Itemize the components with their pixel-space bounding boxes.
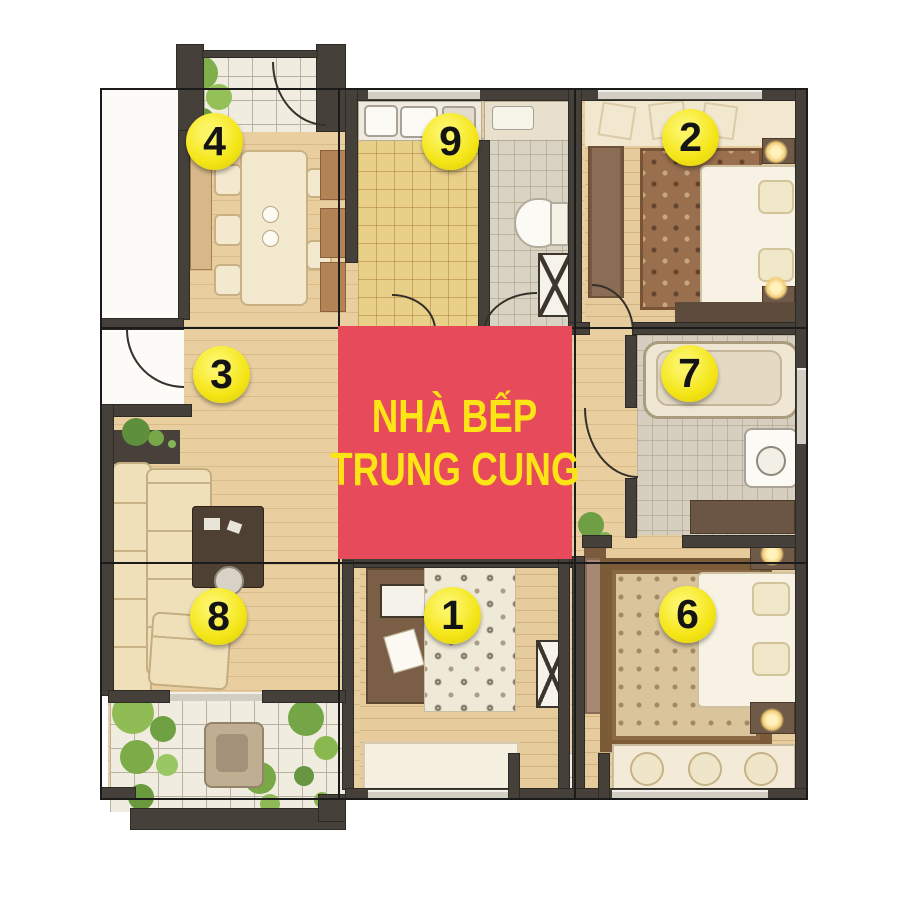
sector-marker-4: 4 (186, 113, 243, 170)
center-kitchen-label: NHÀ BẾP TRUNG CUNG (338, 326, 572, 559)
sector-marker-9: 9 (422, 113, 479, 170)
center-label-line2: TRUNG CUNG (330, 443, 579, 496)
floor-plan: NHÀ BẾP TRUNG CUNG 4 9 2 3 7 8 1 6 (0, 0, 911, 911)
sector-marker-2: 2 (662, 109, 719, 166)
sector-marker-7: 7 (661, 345, 718, 402)
sector-marker-6: 6 (659, 586, 716, 643)
grid-hline (102, 562, 806, 564)
sector-marker-8: 8 (190, 588, 247, 645)
sector-marker-3: 3 (193, 346, 250, 403)
sector-marker-1: 1 (424, 587, 481, 644)
balcony-rail (202, 50, 318, 58)
balcony-bottom-wall (130, 808, 346, 830)
center-label-line1: NHÀ BẾP (372, 390, 538, 443)
